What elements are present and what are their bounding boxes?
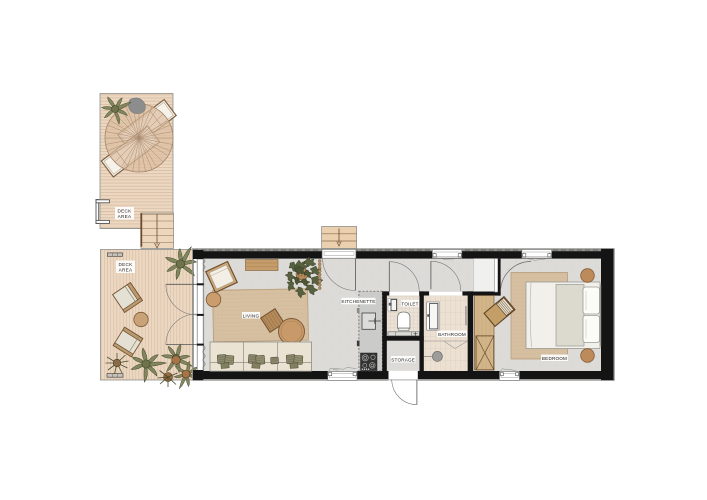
svg-text:BEDROOM: BEDROOM — [542, 356, 567, 361]
svg-text:AREA: AREA — [118, 214, 132, 219]
svg-text:KITCHENETTE: KITCHENETTE — [341, 299, 375, 304]
svg-text:DECK: DECK — [119, 262, 134, 267]
svg-text:BATHROOM: BATHROOM — [438, 332, 466, 337]
svg-text:AREA: AREA — [119, 268, 133, 273]
svg-text:STORAGE: STORAGE — [391, 357, 415, 362]
svg-text:LIVING: LIVING — [243, 313, 260, 318]
svg-text:TOILET: TOILET — [401, 301, 418, 306]
svg-text:DECK: DECK — [118, 208, 133, 213]
